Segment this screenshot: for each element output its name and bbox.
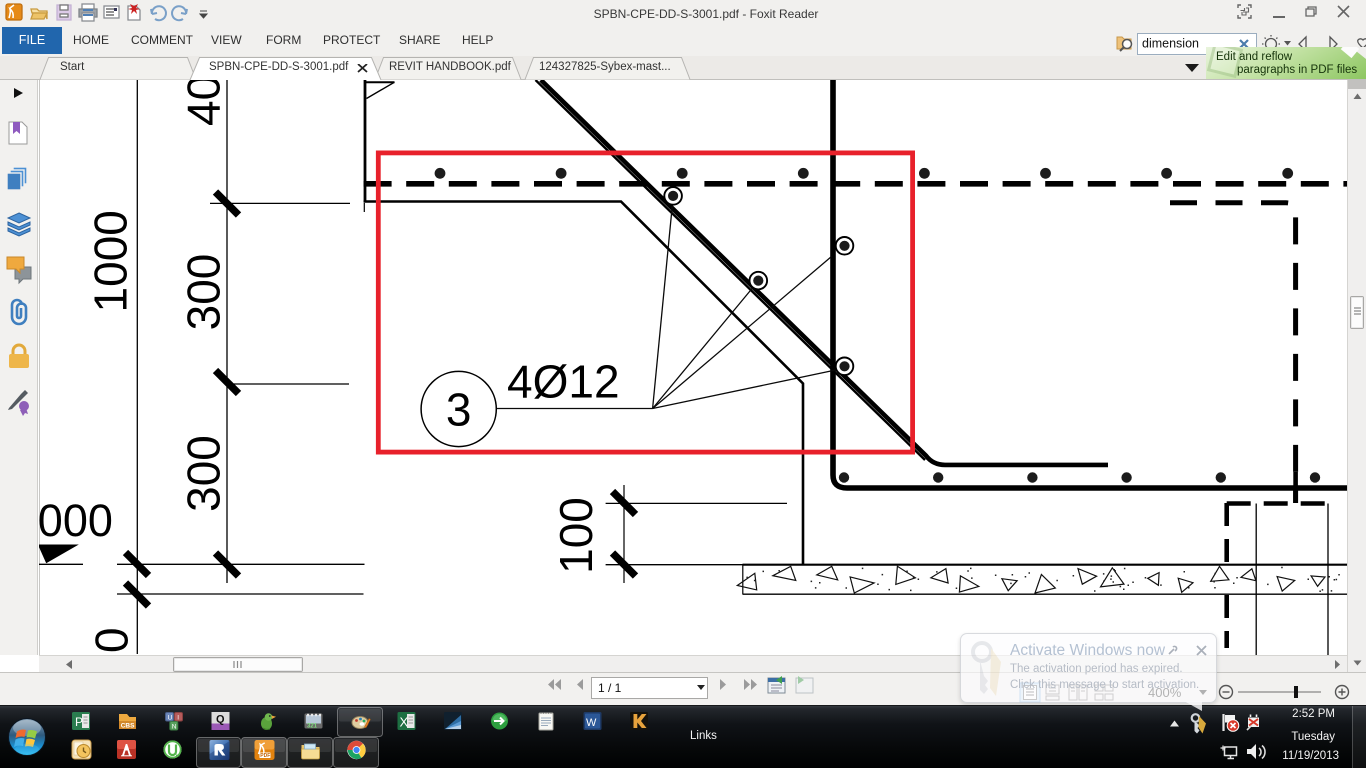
svg-text:PDF: PDF (260, 753, 270, 759)
svg-text:P: P (75, 715, 83, 729)
svg-text:I: I (177, 714, 179, 721)
svg-text:CBS: CBS (121, 723, 135, 730)
svg-text:X: X (400, 715, 409, 730)
svg-text:N: N (172, 723, 177, 730)
svg-text:dimension: dimension (1142, 37, 1199, 51)
svg-text:Q: Q (216, 714, 225, 726)
svg-text:U: U (168, 714, 173, 721)
svg-text:W: W (586, 717, 597, 729)
svg-text:321: 321 (307, 724, 318, 730)
